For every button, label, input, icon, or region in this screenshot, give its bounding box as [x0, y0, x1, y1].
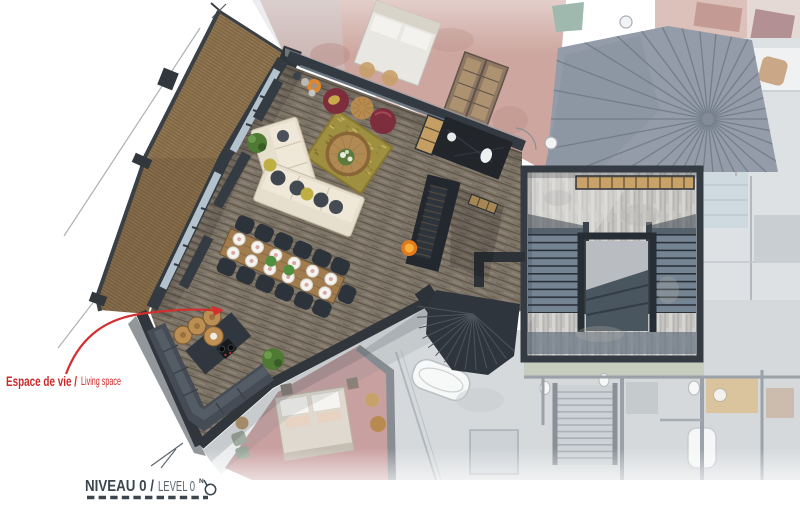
svg-text:LEVEL 0: LEVEL 0 [158, 478, 195, 495]
svg-text:NIVEAU 0 /: NIVEAU 0 / [85, 478, 155, 495]
svg-text:N: N [199, 478, 204, 485]
svg-text:Espace de vie /: Espace de vie / [6, 374, 77, 389]
svg-text:Living space: Living space [81, 374, 121, 388]
